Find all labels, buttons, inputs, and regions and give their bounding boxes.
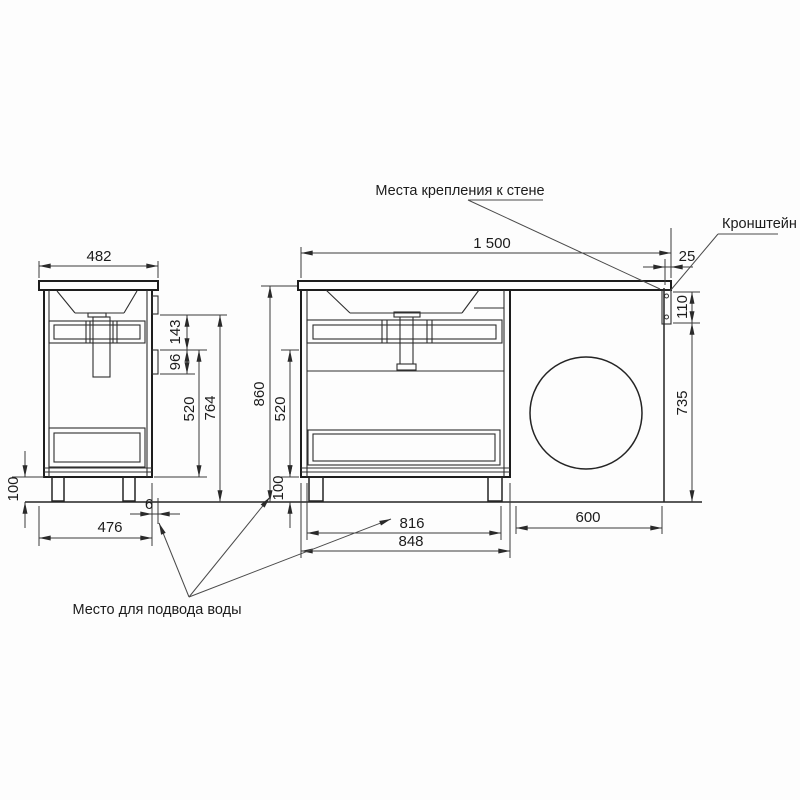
dim-label: 848 [398,533,423,550]
countertop-front [298,281,671,290]
dim-label: 143 [167,319,184,344]
washing-machine-drum [530,357,642,469]
dim-25: 25 [643,248,695,285]
front-view [298,281,671,502]
leg [123,477,135,501]
dim-label: 100 [270,475,287,500]
countertop-side [39,281,158,290]
dim-label: 520 [272,396,289,421]
leg [488,477,502,501]
dim-label: 816 [399,515,424,532]
dim-label: 764 [202,395,219,420]
vanity-washer-drawing: 482 143 96 520 764 100 476 6 [0,0,800,800]
dim-label: 6 [145,496,153,513]
wall-mount-label: Места крепления к стене [375,183,544,199]
bracket-label: Кронштейн [722,216,797,232]
dim-482: 482 [39,248,158,278]
dim-100-front: 100 [270,451,290,528]
leg [309,477,323,501]
side-view [39,281,158,501]
screw-hole [665,315,669,319]
dim-label: 96 [167,354,184,371]
callout-wall-mount: Места крепления к стене [375,183,660,289]
dim-label: 860 [251,381,268,406]
dim-816: 816 [307,483,501,540]
upper-rail-front [307,320,502,343]
sink-bowl-front [326,290,504,317]
cabinet-body-front [301,290,510,477]
lower-drawer-front [308,430,500,465]
dim-600: 600 [516,506,662,534]
dim-100-side: 100 [5,451,44,528]
leg [52,477,64,501]
drain-flange-side [88,313,106,317]
dim-1500: 1 500 [301,228,671,278]
dim-label: 100 [5,476,22,501]
water-supply-label: Место для подвода воды [73,602,242,618]
dim-520-front: 520 [272,350,299,477]
cabinet-body-side [44,290,152,477]
dim-label: 482 [86,248,111,265]
sink-bowl-side [57,291,137,317]
dim-label: 110 [674,295,691,319]
callout-water-supply: Место для подвода воды [73,497,392,618]
dim-735: 735 [674,323,692,502]
drain-pipe-side [93,317,110,377]
lower-drawer-side [49,428,145,467]
dim-label: 1 500 [473,235,511,252]
dim-label: 600 [575,509,600,526]
dim-label: 476 [97,519,122,536]
upper-rail-side [49,321,145,343]
dim-764: 764 [202,315,220,502]
dim-label: 520 [181,396,198,421]
screw-hole [665,294,669,298]
dim-143-96: 143 96 [160,315,227,374]
dim-label: 25 [679,248,696,265]
technical-drawing-page: 482 143 96 520 764 100 476 6 [0,0,800,800]
dim-6: 6 [130,496,180,524]
dim-label: 735 [674,390,691,415]
dim-110: 110 [673,292,700,323]
